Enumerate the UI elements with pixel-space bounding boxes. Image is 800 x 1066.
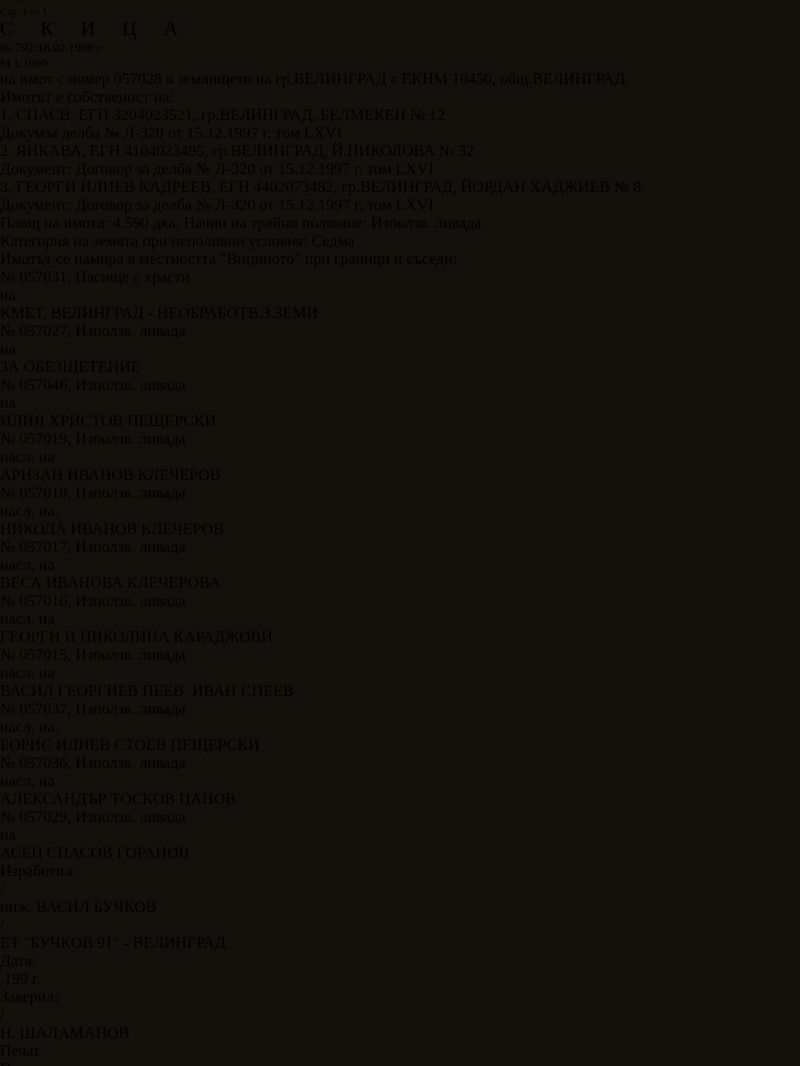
location-post: при граници и съседи: xyxy=(301,251,457,268)
owner-1-prefix: 1. СПАС xyxy=(0,107,60,124)
neighbors-list: № 057031, Пасище с храстинаКМЕТ, ВЕЛИНГР… xyxy=(0,269,800,863)
owner-1-doc-line: Докумза делба № Л-320 от 15.12.1997 г. т… xyxy=(0,125,800,143)
area-label: Площ на имота: xyxy=(0,215,113,232)
doc-title: С К И Ц А xyxy=(0,18,800,41)
izrabotil-label: Изработил: xyxy=(0,863,800,881)
neighbor-row-rel: насл. на xyxy=(0,557,800,575)
category-line: Категория на земята при неполивни услови… xyxy=(0,233,800,251)
date-value: .199 г. xyxy=(0,971,800,989)
neighbor-row-rel: насл. на. xyxy=(0,503,800,521)
typed-text-layer: СЛ №783-97 Стр. 1 от 1 С К И Ц А № 792/1… xyxy=(0,0,800,1066)
location-pre: Имотът се намира в местността xyxy=(0,251,220,268)
corner-note: СЛ №783-97 xyxy=(0,0,800,7)
neighbor-row-name: ГЕОРГИ И НИКОЛИНА КАРАДЖОВИ xyxy=(0,629,800,647)
owner-2-doc-line: Документ: Договор за делба № Л-320 от 15… xyxy=(0,161,800,179)
neighbor-row-no: № 057036, Използв. ливада xyxy=(0,755,800,773)
neighbor-row-name: БОРИС ИЛИЕВ СТОЕВ ПЕЩЕРСКИ xyxy=(0,737,800,755)
neighbor-row-rel: на xyxy=(0,395,800,413)
neighbor-row-no: № 057016, Използв. ливада xyxy=(0,593,800,611)
engineer-firm-line: ЕТ "БУЧКОВ 91" - ВЕЛИНГРАД xyxy=(0,935,800,953)
location-name: "Вициното" xyxy=(220,251,301,268)
doc-scale-line: М 1:1000 xyxy=(0,56,800,71)
category-value: Седма xyxy=(312,233,355,250)
neighbor-row-no: № 057019, Използв. ливада xyxy=(0,431,800,449)
subject-line: на имот с номер 057028 в землището на гр… xyxy=(0,71,800,89)
neighbor-row-name: АРИЗАН ИВАНОВ КЛЕЧЕРОВ xyxy=(0,467,800,485)
owner-1-rest: В, ЕГН 3204023521, гр.ВЕЛИНГРАД, БЕЛМЕКЕ… xyxy=(60,107,445,124)
neighbor-row-no: № 057046, Използв. ливада xyxy=(0,377,800,395)
neighbor-row-rel: на xyxy=(0,827,800,845)
neighbor-row-rel: насл. на xyxy=(0,773,800,791)
slash-mark: / xyxy=(0,881,800,899)
location-line: Имотът се намира в местността "Вициното"… xyxy=(0,251,800,269)
neighbor-row-rel: насл. на xyxy=(0,449,800,467)
neighbor-row-rel: насл. на xyxy=(0,611,800,629)
area-line: Площ на имота: 4.590 дка. Начин на трайн… xyxy=(0,215,800,233)
neighbor-row-no: № 057029, Използв. ливада xyxy=(0,809,800,827)
neighbor-row-rel: на xyxy=(0,287,800,305)
neighbor-row-name: ВАСИЛ ГЕОРГИЕВ ПЕЕВ ИВАН Г.ПЕЕВ xyxy=(0,683,800,701)
subject-pre: на имот с номер xyxy=(0,71,114,88)
owner-3-doc-line: Документ: Договор за делба № Л-320 от 15… xyxy=(0,197,800,215)
pechat-label: Печат xyxy=(0,1043,800,1061)
owner-2-line: 2. ЯНКАВА, ЕГН 4104023495, гр.ВЕЛИНГРАД,… xyxy=(0,143,800,161)
owner-3-line: 3. ГЕОРГИ ИЛИЕВ КАДРЕЕВ, ЕГН 4402073482,… xyxy=(0,179,800,197)
owner-1-line: 1. СПАСВ, ЕГН 3204023521, гр.ВЕЛИНГРАД, … xyxy=(0,107,800,125)
use-value: Използв. ливада xyxy=(371,215,481,232)
neighbor-row-name: АЛЕКСАНДЪР ТОСКОВ ЦАНОВ xyxy=(0,791,800,809)
chairman-title-line: Председател на поземлена комисия xyxy=(0,1061,800,1066)
neighbor-row-name: НИКОЛА ИВАНОВ КЛЕЧЕРОВ xyxy=(0,521,800,539)
engineer-name-line: инж. ВАСИЛ БУЧКОВ xyxy=(0,899,800,917)
owner-1-doc-prefix: Докум xyxy=(0,125,44,142)
neighbor-row-no: № 057015, Използв. ливада xyxy=(0,647,800,665)
chairman-name-line: Н. ШАЛАМАНОВ xyxy=(0,1025,800,1043)
slash-mark: / xyxy=(0,1007,800,1025)
use-label: Начин на трайно ползване: xyxy=(180,215,371,232)
subject-plot-number: 057028 xyxy=(114,71,162,88)
subject-post: в землището на гр.ВЕЛИНГРАД с ЕКНМ 10450… xyxy=(162,71,629,88)
neighbor-row-name: ВЕСА ИВАНОВА КЛЕЧЕРОВА xyxy=(0,575,800,593)
neighbor-row-rel: насл. на. xyxy=(0,719,800,737)
slash-mark: / xyxy=(0,917,800,935)
zaveril-label: Заверил: xyxy=(0,989,800,1007)
neighbor-row-no: № 057018, Използв. ливада xyxy=(0,485,800,503)
date-label: Дата: xyxy=(0,953,800,971)
doc-number-line: № 792/18.02.1998 г. xyxy=(0,41,800,56)
neighbor-row-name: ЗА ОБЕЗЩЕТЕНИЕ xyxy=(0,359,800,377)
photo-background: СЛ №783-97 Стр. 1 от 1 С К И Ц А № 792/1… xyxy=(0,0,800,1066)
category-label: Категория на земята при неполивни услови… xyxy=(0,233,312,250)
neighbor-row-no: № 057031, Пасище с храсти xyxy=(0,269,800,287)
page-note: Стр. 1 от 1 xyxy=(0,7,800,18)
owners-intro: Имотът е собственост на: xyxy=(0,89,800,107)
neighbor-row-name: КМЕТ, ВЕЛИНГРАД - НЕОБРАБОТВ.З.ЗЕМИ xyxy=(0,305,800,323)
neighbor-row-no: № 057027, Използв. ливада xyxy=(0,323,800,341)
neighbor-row-no: № 057017, Използв. ливада xyxy=(0,539,800,557)
owner-1-doc-rest: за делба № Л-320 от 15.12.1997 г. том LX… xyxy=(44,125,342,142)
owner-2-rest: ВА, ЕГН 4104023495, гр.ВЕЛИНГРАД, Й.НИКО… xyxy=(60,143,474,160)
neighbor-row-name: АСЕН СПАСОВ ГОРАНОВ xyxy=(0,845,800,863)
neighbor-row-rel: на xyxy=(0,341,800,359)
neighbor-row-rel: насл. на xyxy=(0,665,800,683)
neighbor-row-name: ИЛИЯ ХРИСТОВ ПЕЩЕРСКИ xyxy=(0,413,800,431)
neighbor-row-no: № 057037, Използв. ливада xyxy=(0,701,800,719)
area-value: 4.590 дка. xyxy=(113,215,180,232)
owner-2-prefix: 2. ЯНКА xyxy=(0,143,60,160)
